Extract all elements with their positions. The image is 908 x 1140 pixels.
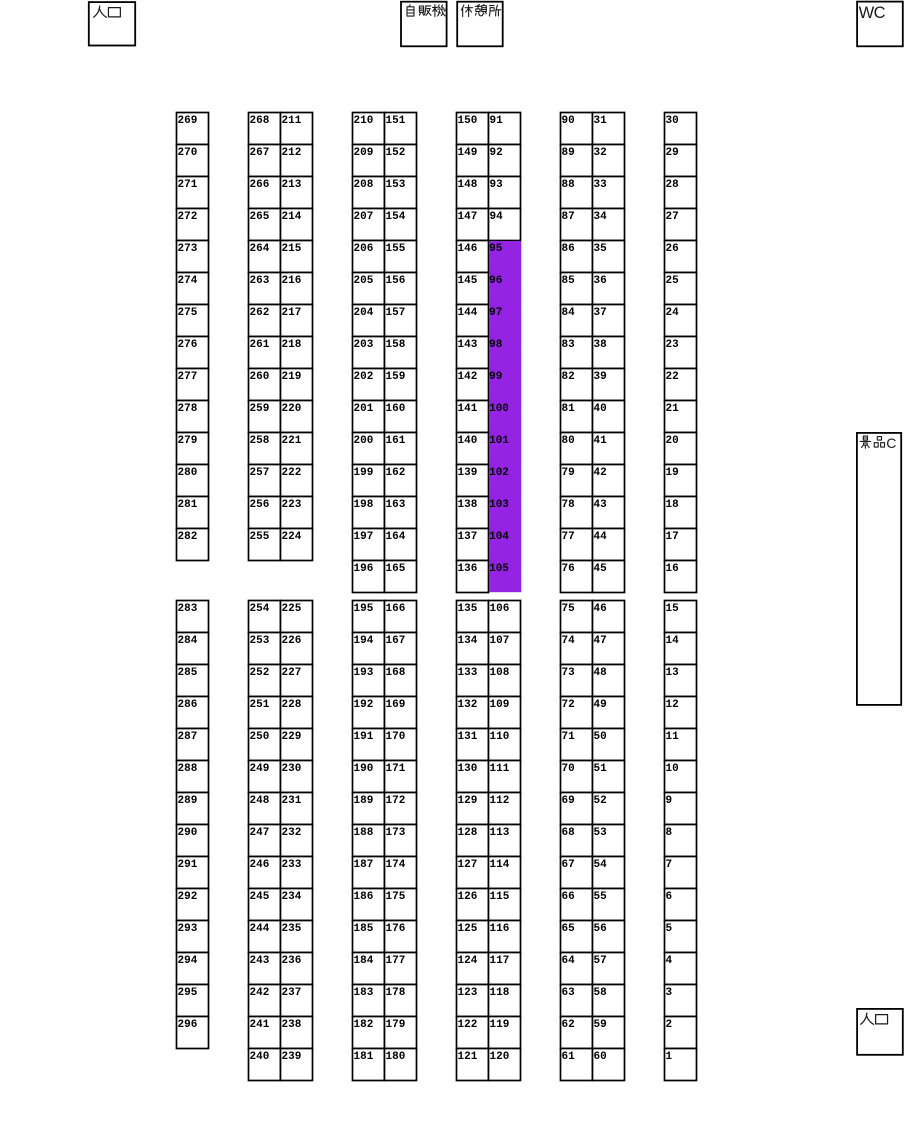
svg-text:102: 102: [489, 467, 509, 479]
svg-text:163: 163: [386, 499, 406, 511]
svg-text:265: 265: [250, 211, 270, 223]
svg-text:204: 204: [354, 307, 374, 319]
svg-text:212: 212: [282, 147, 302, 159]
svg-text:167: 167: [386, 635, 406, 647]
svg-text:16: 16: [666, 563, 679, 575]
svg-text:63: 63: [562, 987, 576, 999]
svg-text:150: 150: [458, 115, 478, 127]
svg-text:135: 135: [458, 603, 478, 615]
svg-text:184: 184: [354, 955, 374, 967]
svg-text:288: 288: [178, 763, 198, 775]
svg-text:266: 266: [250, 179, 270, 191]
svg-text:202: 202: [354, 371, 374, 383]
svg-text:134: 134: [458, 635, 478, 647]
svg-text:251: 251: [250, 699, 270, 711]
svg-text:131: 131: [458, 731, 478, 743]
svg-text:274: 274: [178, 275, 198, 287]
svg-text:223: 223: [282, 499, 302, 511]
svg-text:65: 65: [562, 923, 576, 935]
svg-text:28: 28: [666, 179, 680, 191]
svg-text:130: 130: [458, 763, 478, 775]
svg-text:174: 174: [386, 859, 406, 871]
svg-text:144: 144: [458, 307, 478, 319]
svg-text:258: 258: [250, 435, 270, 447]
svg-text:179: 179: [386, 1019, 406, 1031]
svg-text:32: 32: [594, 147, 607, 159]
svg-text:51: 51: [594, 763, 608, 775]
svg-text:225: 225: [282, 603, 302, 615]
svg-text:97: 97: [489, 307, 502, 319]
svg-text:161: 161: [386, 435, 406, 447]
svg-text:269: 269: [178, 115, 198, 127]
svg-text:95: 95: [489, 243, 503, 255]
svg-text:26: 26: [666, 243, 679, 255]
svg-text:90: 90: [562, 115, 575, 127]
svg-text:107: 107: [490, 635, 510, 647]
svg-text:100: 100: [489, 403, 509, 415]
svg-text:77: 77: [562, 531, 575, 543]
svg-text:61: 61: [562, 1051, 576, 1063]
svg-text:52: 52: [594, 795, 607, 807]
svg-text:289: 289: [178, 795, 198, 807]
svg-text:136: 136: [458, 563, 478, 575]
svg-text:155: 155: [386, 243, 406, 255]
svg-text:87: 87: [562, 211, 575, 223]
svg-text:254: 254: [250, 603, 270, 615]
svg-text:91: 91: [490, 115, 504, 127]
svg-text:88: 88: [562, 179, 576, 191]
svg-text:181: 181: [354, 1051, 374, 1063]
svg-text:189: 189: [354, 795, 374, 807]
svg-text:275: 275: [178, 307, 198, 319]
svg-text:143: 143: [458, 339, 478, 351]
svg-text:228: 228: [282, 699, 302, 711]
svg-text:55: 55: [594, 891, 608, 903]
svg-text:108: 108: [490, 667, 510, 679]
svg-text:273: 273: [178, 243, 198, 255]
svg-text:36: 36: [594, 275, 607, 287]
svg-text:166: 166: [386, 603, 406, 615]
svg-text:277: 277: [178, 371, 198, 383]
svg-text:84: 84: [562, 307, 576, 319]
svg-text:121: 121: [458, 1051, 478, 1063]
svg-text:185: 185: [354, 923, 374, 935]
svg-text:220: 220: [282, 403, 302, 415]
svg-text:268: 268: [250, 115, 270, 127]
svg-text:246: 246: [250, 859, 270, 871]
svg-text:59: 59: [594, 1019, 607, 1031]
svg-text:147: 147: [458, 211, 478, 223]
svg-text:168: 168: [386, 667, 406, 679]
svg-text:C: C: [886, 435, 896, 451]
svg-text:284: 284: [178, 635, 198, 647]
svg-text:281: 281: [178, 499, 198, 511]
svg-text:27: 27: [666, 211, 679, 223]
svg-text:48: 48: [594, 667, 608, 679]
svg-text:53: 53: [594, 827, 608, 839]
svg-text:127: 127: [458, 859, 478, 871]
svg-text:72: 72: [562, 699, 575, 711]
svg-text:252: 252: [250, 667, 270, 679]
svg-text:37: 37: [594, 307, 607, 319]
svg-text:34: 34: [594, 211, 608, 223]
svg-text:43: 43: [594, 499, 608, 511]
svg-text:78: 78: [562, 499, 576, 511]
svg-text:232: 232: [282, 827, 302, 839]
svg-text:236: 236: [282, 955, 302, 967]
svg-text:242: 242: [250, 987, 270, 999]
svg-text:40: 40: [594, 403, 607, 415]
svg-text:182: 182: [354, 1019, 374, 1031]
svg-text:239: 239: [282, 1051, 302, 1063]
svg-text:260: 260: [250, 371, 270, 383]
svg-text:110: 110: [490, 731, 510, 743]
svg-text:105: 105: [489, 563, 509, 575]
svg-text:172: 172: [386, 795, 406, 807]
svg-text:140: 140: [458, 435, 478, 447]
svg-text:219: 219: [282, 371, 302, 383]
svg-text:71: 71: [562, 731, 576, 743]
svg-text:162: 162: [386, 467, 406, 479]
svg-text:296: 296: [178, 1019, 198, 1031]
svg-text:117: 117: [490, 955, 510, 967]
svg-text:159: 159: [386, 371, 406, 383]
svg-text:81: 81: [562, 403, 576, 415]
svg-text:41: 41: [594, 435, 608, 447]
svg-text:180: 180: [386, 1051, 406, 1063]
svg-text:92: 92: [490, 147, 503, 159]
svg-text:133: 133: [458, 667, 478, 679]
svg-text:128: 128: [458, 827, 478, 839]
svg-text:93: 93: [490, 179, 504, 191]
svg-text:233: 233: [282, 859, 302, 871]
svg-text:4: 4: [666, 955, 673, 967]
svg-text:42: 42: [594, 467, 607, 479]
svg-text:60: 60: [594, 1051, 607, 1063]
svg-text:69: 69: [562, 795, 575, 807]
svg-text:238: 238: [282, 1019, 302, 1031]
svg-text:76: 76: [562, 563, 575, 575]
svg-text:286: 286: [178, 699, 198, 711]
svg-text:109: 109: [490, 699, 510, 711]
svg-text:285: 285: [178, 667, 198, 679]
svg-text:244: 244: [250, 923, 270, 935]
svg-text:118: 118: [490, 987, 510, 999]
svg-text:237: 237: [282, 987, 302, 999]
svg-text:276: 276: [178, 339, 198, 351]
svg-text:249: 249: [250, 763, 270, 775]
svg-text:290: 290: [178, 827, 198, 839]
svg-text:259: 259: [250, 403, 270, 415]
svg-text:164: 164: [386, 531, 406, 543]
svg-text:82: 82: [562, 371, 575, 383]
svg-text:149: 149: [458, 147, 478, 159]
svg-text:57: 57: [594, 955, 607, 967]
svg-text:152: 152: [386, 147, 406, 159]
svg-text:23: 23: [666, 339, 680, 351]
svg-text:157: 157: [386, 307, 406, 319]
svg-text:119: 119: [490, 1019, 510, 1031]
svg-text:253: 253: [250, 635, 270, 647]
svg-text:186: 186: [354, 891, 374, 903]
svg-text:99: 99: [489, 371, 502, 383]
svg-text:142: 142: [458, 371, 478, 383]
svg-text:113: 113: [490, 827, 510, 839]
svg-text:176: 176: [386, 923, 406, 935]
svg-text:279: 279: [178, 435, 198, 447]
svg-text:3: 3: [666, 987, 673, 999]
svg-text:116: 116: [490, 923, 510, 935]
svg-text:241: 241: [250, 1019, 270, 1031]
svg-text:35: 35: [594, 243, 608, 255]
svg-text:255: 255: [250, 531, 270, 543]
svg-text:148: 148: [458, 179, 478, 191]
svg-text:214: 214: [282, 211, 302, 223]
svg-text:68: 68: [562, 827, 576, 839]
svg-text:126: 126: [458, 891, 478, 903]
svg-text:64: 64: [562, 955, 576, 967]
svg-text:86: 86: [562, 243, 575, 255]
svg-text:18: 18: [666, 499, 680, 511]
svg-text:190: 190: [354, 763, 374, 775]
svg-text:38: 38: [594, 339, 608, 351]
svg-text:270: 270: [178, 147, 198, 159]
svg-text:132: 132: [458, 699, 478, 711]
svg-text:11: 11: [666, 731, 680, 743]
svg-text:7: 7: [666, 859, 673, 871]
svg-text:278: 278: [178, 403, 198, 415]
svg-text:39: 39: [594, 371, 607, 383]
svg-text:145: 145: [458, 275, 478, 287]
svg-text:280: 280: [178, 467, 198, 479]
svg-text:191: 191: [354, 731, 374, 743]
svg-text:13: 13: [666, 667, 680, 679]
svg-text:271: 271: [178, 179, 198, 191]
svg-text:188: 188: [354, 827, 374, 839]
svg-text:56: 56: [594, 923, 607, 935]
svg-text:264: 264: [250, 243, 270, 255]
svg-text:94: 94: [490, 211, 504, 223]
svg-text:58: 58: [594, 987, 608, 999]
svg-text:20: 20: [666, 435, 679, 447]
svg-text:267: 267: [250, 147, 270, 159]
svg-text:103: 103: [489, 499, 509, 511]
svg-text:45: 45: [594, 563, 608, 575]
svg-text:196: 196: [354, 563, 374, 575]
svg-text:115: 115: [490, 891, 510, 903]
svg-text:6: 6: [666, 891, 673, 903]
svg-text:173: 173: [386, 827, 406, 839]
svg-text:247: 247: [250, 827, 270, 839]
svg-text:200: 200: [354, 435, 374, 447]
svg-text:282: 282: [178, 531, 198, 543]
svg-text:129: 129: [458, 795, 478, 807]
svg-text:75: 75: [562, 603, 576, 615]
svg-text:230: 230: [282, 763, 302, 775]
svg-text:294: 294: [178, 955, 198, 967]
svg-text:272: 272: [178, 211, 198, 223]
svg-text:101: 101: [489, 435, 509, 447]
svg-text:112: 112: [490, 795, 510, 807]
svg-text:222: 222: [282, 467, 302, 479]
svg-text:12: 12: [666, 699, 679, 711]
svg-text:83: 83: [562, 339, 576, 351]
svg-text:170: 170: [386, 731, 406, 743]
svg-text:195: 195: [354, 603, 374, 615]
svg-text:199: 199: [354, 467, 374, 479]
svg-text:257: 257: [250, 467, 270, 479]
svg-text:151: 151: [386, 115, 406, 127]
svg-text:30: 30: [666, 115, 679, 127]
svg-text:197: 197: [354, 531, 374, 543]
svg-text:WC: WC: [859, 4, 886, 22]
svg-text:217: 217: [282, 307, 302, 319]
svg-text:15: 15: [666, 603, 680, 615]
svg-text:192: 192: [354, 699, 374, 711]
svg-text:44: 44: [594, 531, 608, 543]
svg-text:198: 198: [354, 499, 374, 511]
svg-text:9: 9: [666, 795, 673, 807]
svg-text:194: 194: [354, 635, 374, 647]
svg-text:203: 203: [354, 339, 374, 351]
svg-text:124: 124: [458, 955, 478, 967]
svg-text:79: 79: [562, 467, 575, 479]
svg-text:160: 160: [386, 403, 406, 415]
svg-text:295: 295: [178, 987, 198, 999]
svg-text:240: 240: [250, 1051, 270, 1063]
svg-text:250: 250: [250, 731, 270, 743]
svg-text:248: 248: [250, 795, 270, 807]
svg-text:146: 146: [458, 243, 478, 255]
svg-text:85: 85: [562, 275, 576, 287]
svg-text:98: 98: [489, 339, 503, 351]
svg-text:210: 210: [354, 115, 374, 127]
svg-text:19: 19: [666, 467, 679, 479]
svg-text:218: 218: [282, 339, 302, 351]
svg-text:231: 231: [282, 795, 302, 807]
svg-text:201: 201: [354, 403, 374, 415]
svg-text:245: 245: [250, 891, 270, 903]
svg-text:2: 2: [666, 1019, 673, 1031]
svg-text:153: 153: [386, 179, 406, 191]
svg-text:73: 73: [562, 667, 576, 679]
svg-text:193: 193: [354, 667, 374, 679]
svg-text:62: 62: [562, 1019, 575, 1031]
svg-text:256: 256: [250, 499, 270, 511]
svg-text:243: 243: [250, 955, 270, 967]
svg-text:209: 209: [354, 147, 374, 159]
svg-text:178: 178: [386, 987, 406, 999]
svg-text:89: 89: [562, 147, 575, 159]
svg-text:120: 120: [490, 1051, 510, 1063]
svg-text:262: 262: [250, 307, 270, 319]
svg-text:139: 139: [458, 467, 478, 479]
svg-text:156: 156: [386, 275, 406, 287]
svg-text:211: 211: [282, 115, 302, 127]
svg-text:177: 177: [386, 955, 406, 967]
svg-text:187: 187: [354, 859, 374, 871]
svg-text:291: 291: [178, 859, 198, 871]
svg-text:287: 287: [178, 731, 198, 743]
svg-text:106: 106: [490, 603, 510, 615]
svg-text:235: 235: [282, 923, 302, 935]
svg-text:24: 24: [666, 307, 680, 319]
svg-text:227: 227: [282, 667, 302, 679]
svg-text:207: 207: [354, 211, 374, 223]
svg-text:47: 47: [594, 635, 607, 647]
svg-text:215: 215: [282, 243, 302, 255]
svg-text:221: 221: [282, 435, 302, 447]
svg-text:74: 74: [562, 635, 576, 647]
svg-text:154: 154: [386, 211, 406, 223]
svg-text:10: 10: [666, 763, 679, 775]
svg-text:141: 141: [458, 403, 478, 415]
svg-text:1: 1: [666, 1051, 673, 1063]
svg-text:205: 205: [354, 275, 374, 287]
svg-text:46: 46: [594, 603, 607, 615]
svg-text:50: 50: [594, 731, 607, 743]
svg-text:104: 104: [489, 531, 509, 543]
svg-text:183: 183: [354, 987, 374, 999]
svg-text:70: 70: [562, 763, 575, 775]
svg-text:263: 263: [250, 275, 270, 287]
svg-text:111: 111: [490, 763, 510, 775]
svg-text:33: 33: [594, 179, 608, 191]
svg-text:31: 31: [594, 115, 608, 127]
svg-text:114: 114: [490, 859, 510, 871]
svg-text:49: 49: [594, 699, 607, 711]
svg-text:14: 14: [666, 635, 680, 647]
svg-text:171: 171: [386, 763, 406, 775]
svg-text:22: 22: [666, 371, 679, 383]
svg-text:66: 66: [562, 891, 575, 903]
svg-text:8: 8: [666, 827, 673, 839]
svg-text:213: 213: [282, 179, 302, 191]
svg-text:283: 283: [178, 603, 198, 615]
svg-text:96: 96: [489, 275, 502, 287]
svg-text:206: 206: [354, 243, 374, 255]
svg-text:293: 293: [178, 923, 198, 935]
svg-text:5: 5: [666, 923, 673, 935]
svg-text:292: 292: [178, 891, 198, 903]
svg-text:226: 226: [282, 635, 302, 647]
svg-text:208: 208: [354, 179, 374, 191]
svg-text:138: 138: [458, 499, 478, 511]
svg-text:216: 216: [282, 275, 302, 287]
svg-text:123: 123: [458, 987, 478, 999]
svg-text:17: 17: [666, 531, 679, 543]
svg-text:261: 261: [250, 339, 270, 351]
svg-text:224: 224: [282, 531, 302, 543]
svg-text:122: 122: [458, 1019, 478, 1031]
svg-text:125: 125: [458, 923, 478, 935]
svg-text:21: 21: [666, 403, 680, 415]
svg-text:29: 29: [666, 147, 679, 159]
svg-text:158: 158: [386, 339, 406, 351]
svg-text:54: 54: [594, 859, 608, 871]
svg-text:175: 175: [386, 891, 406, 903]
svg-text:229: 229: [282, 731, 302, 743]
svg-text:80: 80: [562, 435, 575, 447]
svg-text:67: 67: [562, 859, 575, 871]
svg-text:234: 234: [282, 891, 302, 903]
svg-text:169: 169: [386, 699, 406, 711]
svg-text:165: 165: [386, 563, 406, 575]
svg-text:137: 137: [458, 531, 478, 543]
svg-text:25: 25: [666, 275, 680, 287]
